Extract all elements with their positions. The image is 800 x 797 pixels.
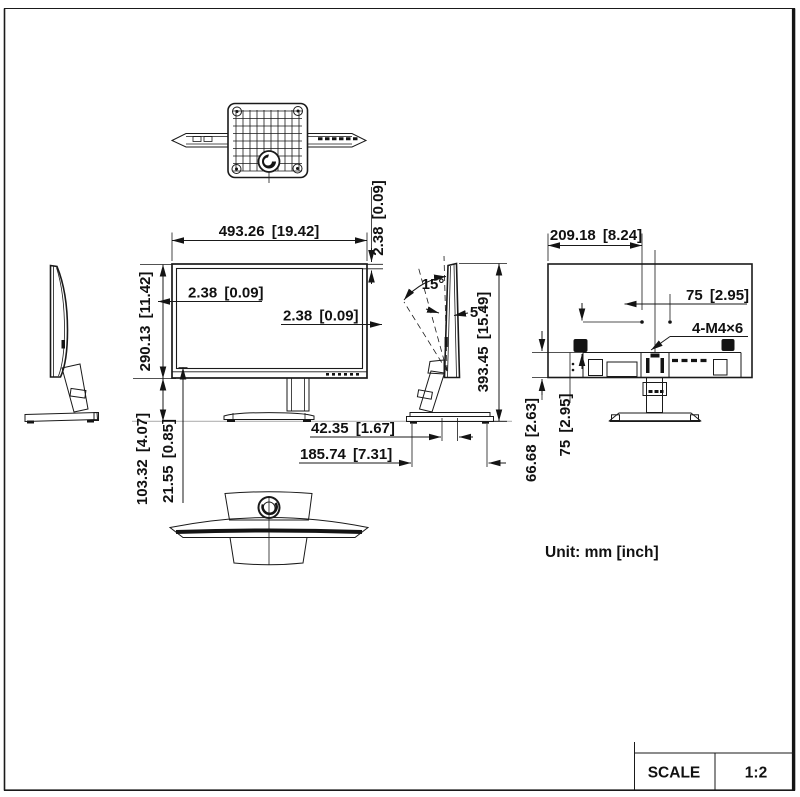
side-left-foot-2 — [87, 420, 94, 423]
scale-value: 1:2 — [745, 765, 767, 782]
rear-mount-latch — [651, 354, 660, 358]
screw-dot — [296, 167, 299, 170]
top-view-hinge — [259, 151, 280, 172]
scale-label: SCALE — [648, 765, 701, 782]
side-base-top — [410, 413, 490, 417]
tilt-arrow-forward-left — [426, 309, 439, 313]
side-left-cable-clip — [70, 388, 86, 398]
dim-left-bezel: 2.38 [0.09] — [188, 285, 264, 302]
unit-note: Unit: mm [inch] — [545, 544, 659, 561]
dim-right-bezel: 2.38 [0.09] — [283, 308, 359, 325]
screw-dot — [236, 110, 239, 113]
rear-detail-dot-2 — [572, 369, 575, 372]
left-side-view — [25, 266, 99, 424]
vesa-hole-dot-right — [668, 320, 672, 324]
front-stand-column — [287, 378, 309, 411]
dim-total-height: 393.45 [15.49] — [475, 292, 492, 393]
rear-vesa-screw-left — [574, 339, 588, 352]
tilt-arrow-forward-right — [454, 313, 468, 316]
dim-panel-bottom-offset: 21.55 [0.85] — [160, 419, 177, 503]
side-stand-strut — [420, 371, 445, 412]
monitor-dimension-drawing: 493.26 [19.42] 2.38 [0.09] 2.38 [0.09] 2… — [0, 0, 800, 797]
front-stand-base — [224, 413, 314, 420]
side-left-base — [25, 413, 98, 422]
dim-base-depth: 185.74 [7.31] — [300, 446, 392, 463]
screw-dot — [235, 168, 238, 171]
top-view-left-slot-2 — [204, 137, 212, 142]
ext-lines-base-depth — [412, 424, 487, 467]
angle-tilt-back: 15° — [422, 276, 445, 293]
rear-vesa-screw-right — [722, 339, 735, 351]
side-left-panel — [51, 266, 68, 378]
bottom-neck-lower — [230, 538, 307, 565]
side-panel-lines — [448, 265, 457, 378]
side-left-foot — [27, 421, 34, 424]
front-base-ticks — [233, 413, 305, 419]
title-block: SCALE 1:2 — [635, 742, 794, 790]
side-base-foot-2 — [482, 422, 489, 424]
front-stand-column-lines — [292, 378, 305, 411]
page-border — [4, 9, 795, 791]
side-left-port-slot — [62, 340, 66, 349]
side-cable-clip — [417, 390, 432, 399]
tilt-construction-lines — [418, 256, 447, 371]
dim-vesa-horizontal: 75 [2.95] — [686, 287, 749, 304]
rear-base — [610, 413, 701, 421]
side-left-stand-strut — [62, 364, 88, 412]
dim-screen-height: 290.13 [11.42] — [137, 272, 154, 372]
dim-screw-spec: 4-M4×6 — [692, 320, 743, 337]
front-base-foot-2 — [303, 420, 311, 423]
top-view-left-slot — [193, 137, 201, 142]
rear-mount-rail — [646, 358, 650, 373]
dim-rear-width: 209.18 [8.24] — [550, 227, 642, 244]
dim-top-bezel: 2.38 [0.09] — [370, 180, 387, 256]
screw-dot — [297, 110, 300, 113]
top-view — [172, 104, 366, 184]
dim-pivot-depth: 42.35 [1.67] — [311, 420, 395, 437]
dim-front-width: 493.26 [19.42] — [219, 223, 320, 240]
side-base-foot — [410, 422, 417, 424]
dim-vesa-vertical: 75 [2.95] — [557, 393, 574, 456]
bottom-view — [170, 492, 368, 565]
tilt-construction-radius — [404, 302, 447, 371]
rear-mount-rail-2 — [661, 358, 665, 373]
dim-vesa-offset: 66.68 [2.63] — [523, 398, 540, 482]
front-base-foot — [227, 420, 235, 423]
rear-detail-dot — [572, 363, 575, 366]
dim-stand-height: 103.32 [4.07] — [134, 413, 151, 505]
